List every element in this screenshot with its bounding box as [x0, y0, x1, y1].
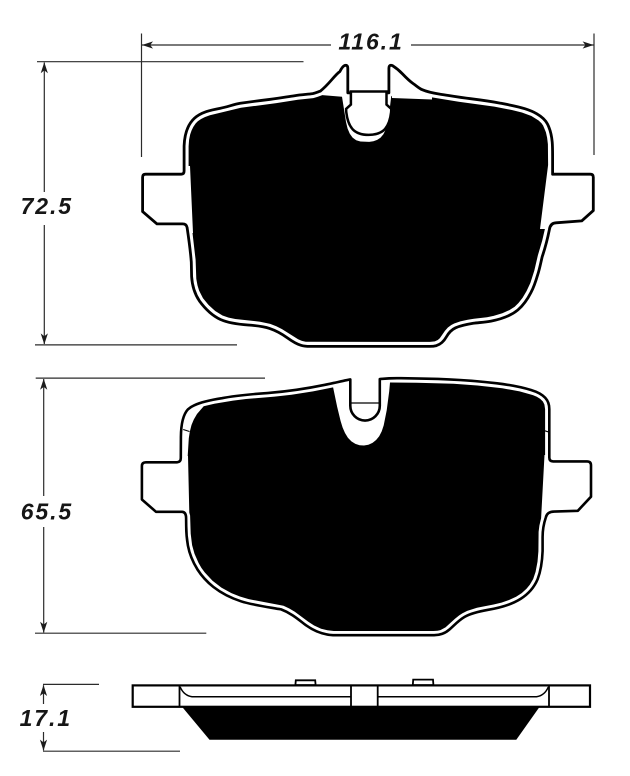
svg-text:17.1: 17.1	[20, 705, 72, 731]
svg-text:116.1: 116.1	[338, 29, 403, 55]
svg-text:72.5: 72.5	[21, 193, 73, 219]
svg-text:65.5: 65.5	[21, 498, 73, 524]
